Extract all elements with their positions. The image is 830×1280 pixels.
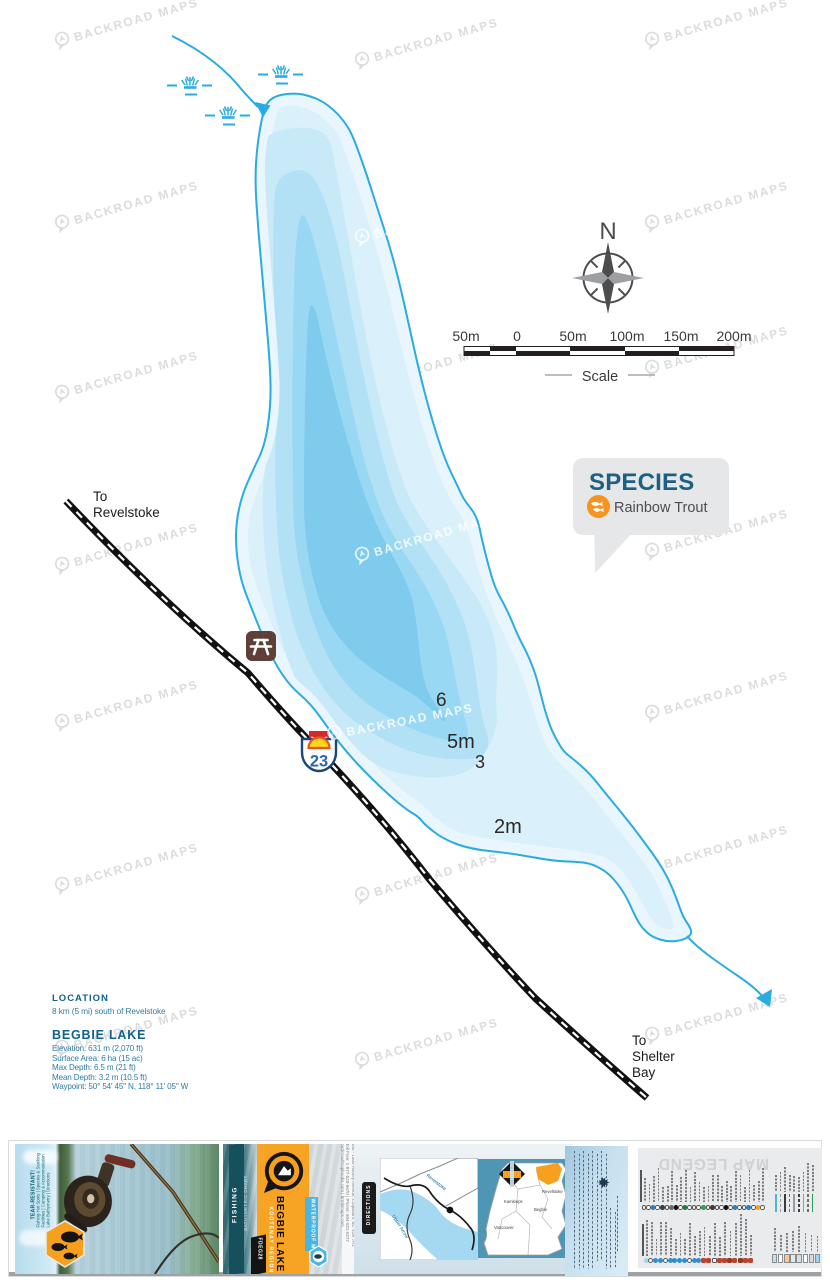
svg-text:Revelstoke: Revelstoke	[542, 1189, 563, 1194]
svg-text:100m: 100m	[609, 328, 644, 344]
svg-text:N: N	[599, 218, 616, 245]
svg-text:Kamloops: Kamloops	[504, 1199, 523, 1204]
svg-text:Begbie: Begbie	[534, 1207, 548, 1212]
svg-text:200m: 200m	[716, 328, 751, 344]
svg-text:3: 3	[475, 752, 485, 772]
svg-text:0: 0	[513, 328, 521, 344]
svg-text:150m: 150m	[663, 328, 698, 344]
svg-text:To: To	[93, 489, 107, 504]
svg-text:To: To	[632, 1033, 646, 1048]
svg-text:Shelter: Shelter	[632, 1049, 675, 1064]
svg-text:2m: 2m	[494, 816, 522, 838]
svg-text:5m: 5m	[447, 731, 475, 753]
svg-text:Vancouver: Vancouver	[494, 1225, 514, 1230]
svg-text:50m: 50m	[559, 328, 586, 344]
svg-text:50m: 50m	[452, 328, 479, 344]
svg-text:23: 23	[310, 753, 328, 771]
svg-text:Revelstoke: Revelstoke	[93, 505, 160, 520]
svg-text:Scale: Scale	[582, 369, 618, 385]
svg-text:Bay: Bay	[632, 1065, 656, 1080]
